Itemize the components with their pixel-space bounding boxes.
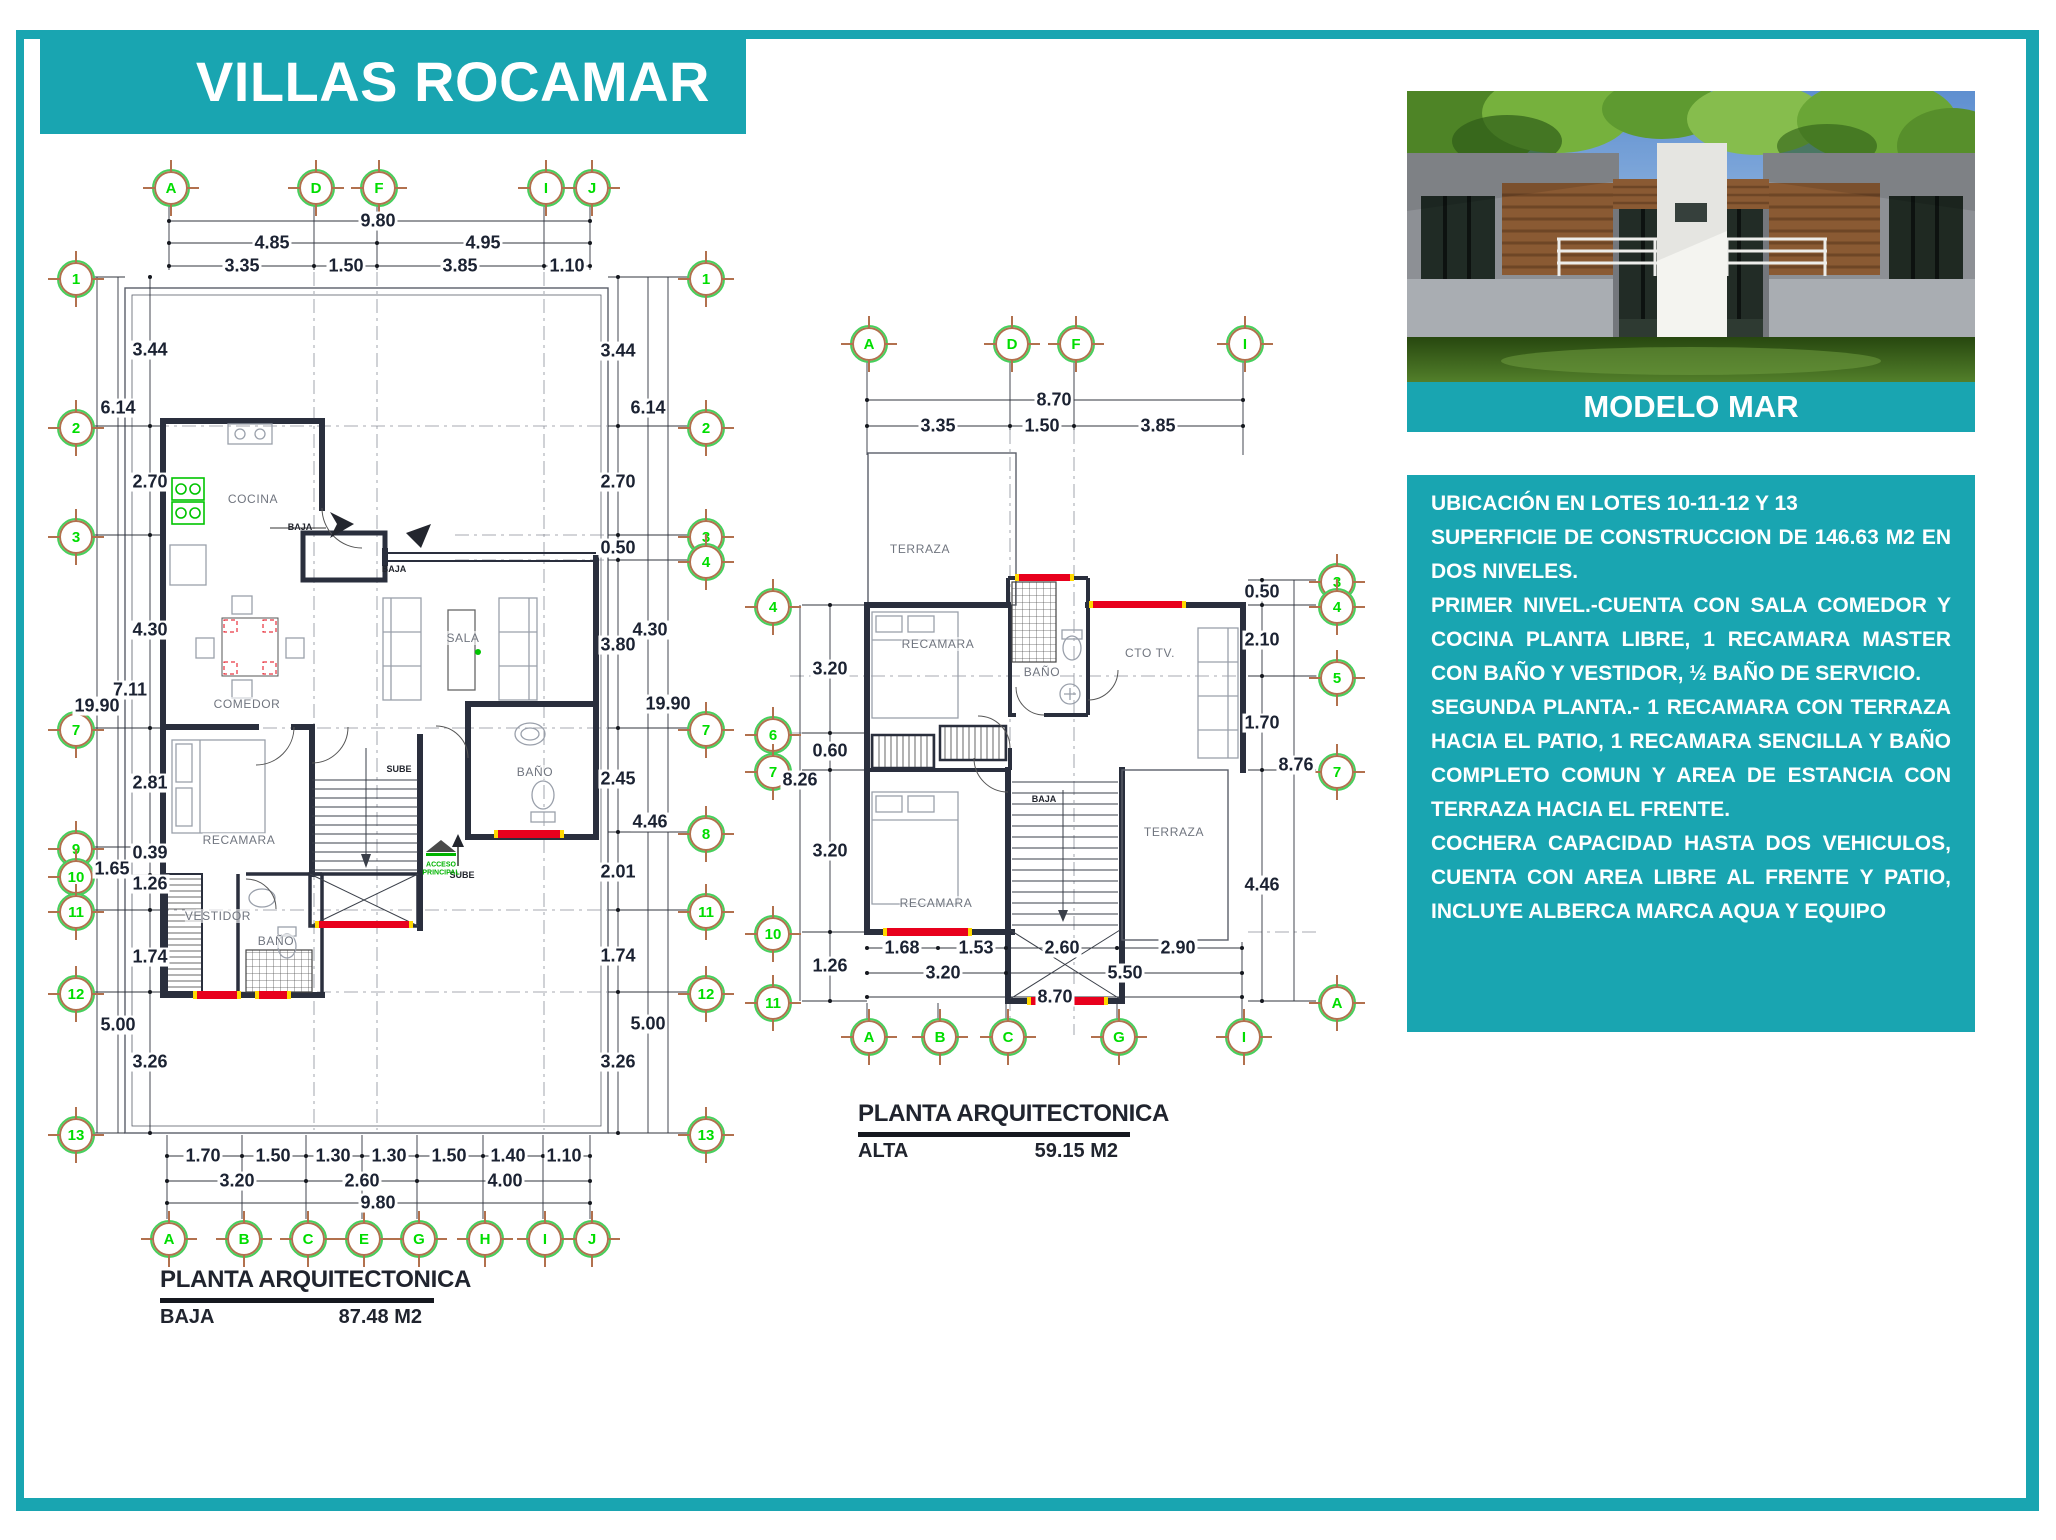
plan-baja-drawing [92,203,698,1219]
plan-alta-area: 59.15 M2 [1035,1140,1118,1163]
plan-alta-titleblock: PLANTA ARQUITECTONICA ALTA 59.15 M2 [858,1100,1130,1163]
plan-alta-walls [867,605,1243,1001]
lot-boundary [125,288,608,1133]
chair-marks [224,620,276,674]
closet-2 [940,726,1006,760]
void-x [310,874,418,926]
plan-baja-level: BAJA [160,1306,214,1329]
stairs [312,748,418,870]
dimension-lines [92,203,692,1219]
plan-alta-underline [858,1132,1130,1137]
plan-baja-titleblock: PLANTA ARQUITECTONICA BAJA 87.48 M2 [160,1266,434,1329]
page: VILLAS ROCAMAR [0,0,2056,1540]
stove [172,478,204,524]
terraza-upper [868,453,1016,605]
dimension-ticks [148,219,1264,1205]
shower-floor [246,950,312,992]
furniture [170,424,555,958]
plan-baja-underline [160,1298,434,1303]
plan-alta-drawing [790,357,1320,1035]
shower-floor-alta [1012,582,1056,662]
terraza-lower [1122,770,1228,940]
grid-axes [128,272,698,1130]
sala-window [385,548,596,566]
plan-baja-walls [163,421,596,995]
plan-alta-level: ALTA [858,1140,908,1163]
closet-1 [872,735,934,768]
plan-baja-area: 87.48 M2 [339,1306,422,1329]
dining-table [222,618,278,676]
vestidor-closet [167,874,202,992]
plan-alta-title: PLANTA ARQUITECTONICA [858,1100,1130,1128]
plan-baja-title: PLANTA ARQUITECTONICA [160,1266,434,1294]
